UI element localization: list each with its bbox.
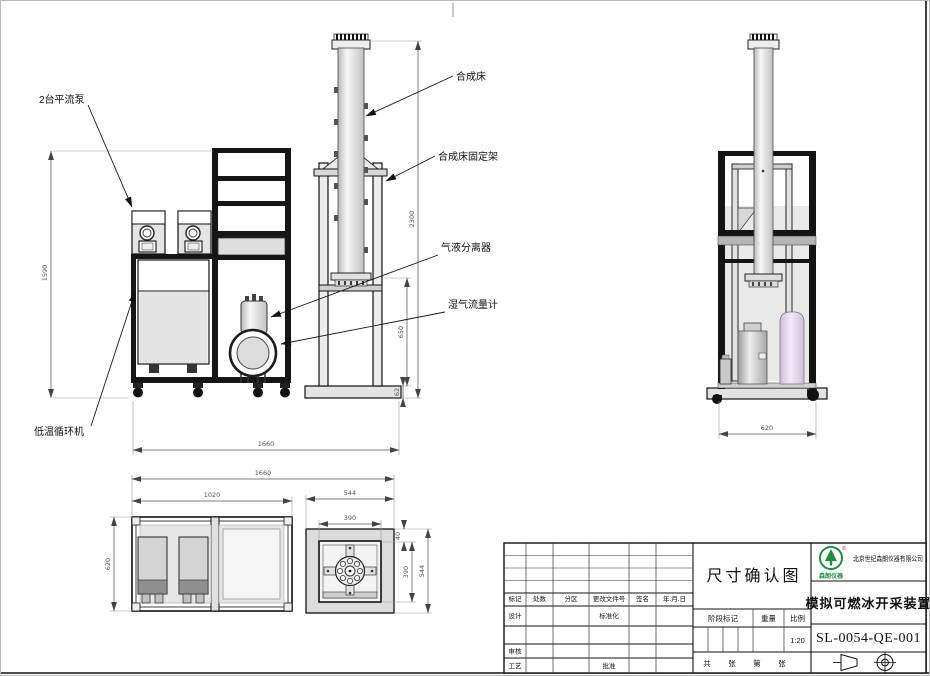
sig-design: 设计 (509, 611, 523, 620)
column-stand-front (305, 34, 401, 398)
pump-left (132, 211, 165, 254)
label-separator: 气液分离器 (441, 241, 491, 254)
company-logo: ® 森朗仪器 (818, 545, 846, 580)
logo-text: 森朗仪器 (818, 572, 844, 580)
cad-drawing: 1590 2300 650 62 1660 620 1660 1020 (1, 1, 930, 676)
sheet-name: 尺寸确认图 (706, 567, 801, 585)
dim-plan-inner: 390 (344, 514, 356, 522)
dim-plan-cart: 1020 (204, 491, 221, 499)
separator-side (780, 312, 804, 384)
scale-label: 比例 (790, 613, 805, 623)
stage-mark-label: 阶段标记 (708, 613, 738, 623)
sig-review: 审核 (509, 647, 523, 656)
plan-view-cart (132, 517, 292, 611)
sig-approve: 批准 (603, 661, 617, 670)
rev-header-docno: 更改文件号 (593, 594, 626, 603)
logo-reg-mark: ® (842, 545, 846, 552)
sig-standard: 标准化 (599, 611, 619, 620)
dim-front-height: 1590 (41, 265, 49, 282)
dim-plan-total: 1660 (255, 469, 272, 477)
dim-front-width: 1660 (258, 440, 275, 448)
label-synthesis-bed: 合成床 (456, 70, 486, 83)
label-chiller: 低温循环机 (34, 425, 84, 438)
sheets-unit1: 张 (728, 659, 736, 668)
label-bed-frame: 合成床固定架 (438, 150, 498, 163)
pump-top-left (138, 537, 167, 603)
dim-base-height: 62 (393, 388, 401, 396)
sheets-unit2: 张 (778, 659, 786, 668)
drawing-number: SL-0054-QE-001 (816, 631, 921, 646)
dim-plan-depth: 620 (104, 558, 112, 570)
rev-header-mark: 标记 (509, 594, 523, 603)
pump-right (178, 211, 211, 254)
weight-label: 重量 (761, 614, 776, 623)
product-name: 模拟可燃冰开采装置 (805, 596, 930, 611)
chiller-box (138, 260, 209, 373)
rev-header-zone: 分区 (565, 594, 579, 603)
side-view (707, 34, 827, 404)
rev-header-count: 处数 (533, 594, 547, 603)
rev-header-date: 年.月.日 (663, 594, 686, 603)
scale-value: 1:20 (790, 636, 805, 645)
sig-process: 工艺 (509, 662, 523, 670)
drawing-sheet: 1590 2300 650 62 1660 620 1660 1020 (0, 0, 930, 676)
dim-column-height: 2300 (408, 211, 416, 228)
sheets-total-label: 共 (703, 659, 711, 668)
cart-casters (133, 383, 290, 398)
dim-side-width: 620 (761, 424, 773, 432)
plan-view-stand (306, 529, 394, 613)
label-pumps: 2台平流泵 (39, 93, 85, 106)
front-view (131, 148, 291, 398)
title-block: 标记 处数 分区 更改文件号 签名 年.月.日 设计 标准化 审核 工艺 批准 … (504, 543, 930, 673)
dim-plan-offset: 40 (394, 532, 402, 540)
dim-stand-height: 650 (397, 326, 405, 338)
rev-header-sign: 签名 (636, 594, 649, 603)
pump-top-right (179, 537, 208, 603)
dim-plan-stand-depth: 544 (418, 565, 426, 577)
stand-base-plate (305, 386, 401, 398)
dim-plan-stand: 544 (344, 489, 356, 497)
company-name: 北京世纪森朗仪器有限公司 (853, 554, 923, 563)
sheets-no-label: 第 (753, 658, 761, 668)
flow-meter-dial (230, 330, 276, 383)
dim-plan-inner-depth: 390 (402, 566, 410, 578)
label-flow-meter: 湿气流量计 (448, 298, 498, 311)
